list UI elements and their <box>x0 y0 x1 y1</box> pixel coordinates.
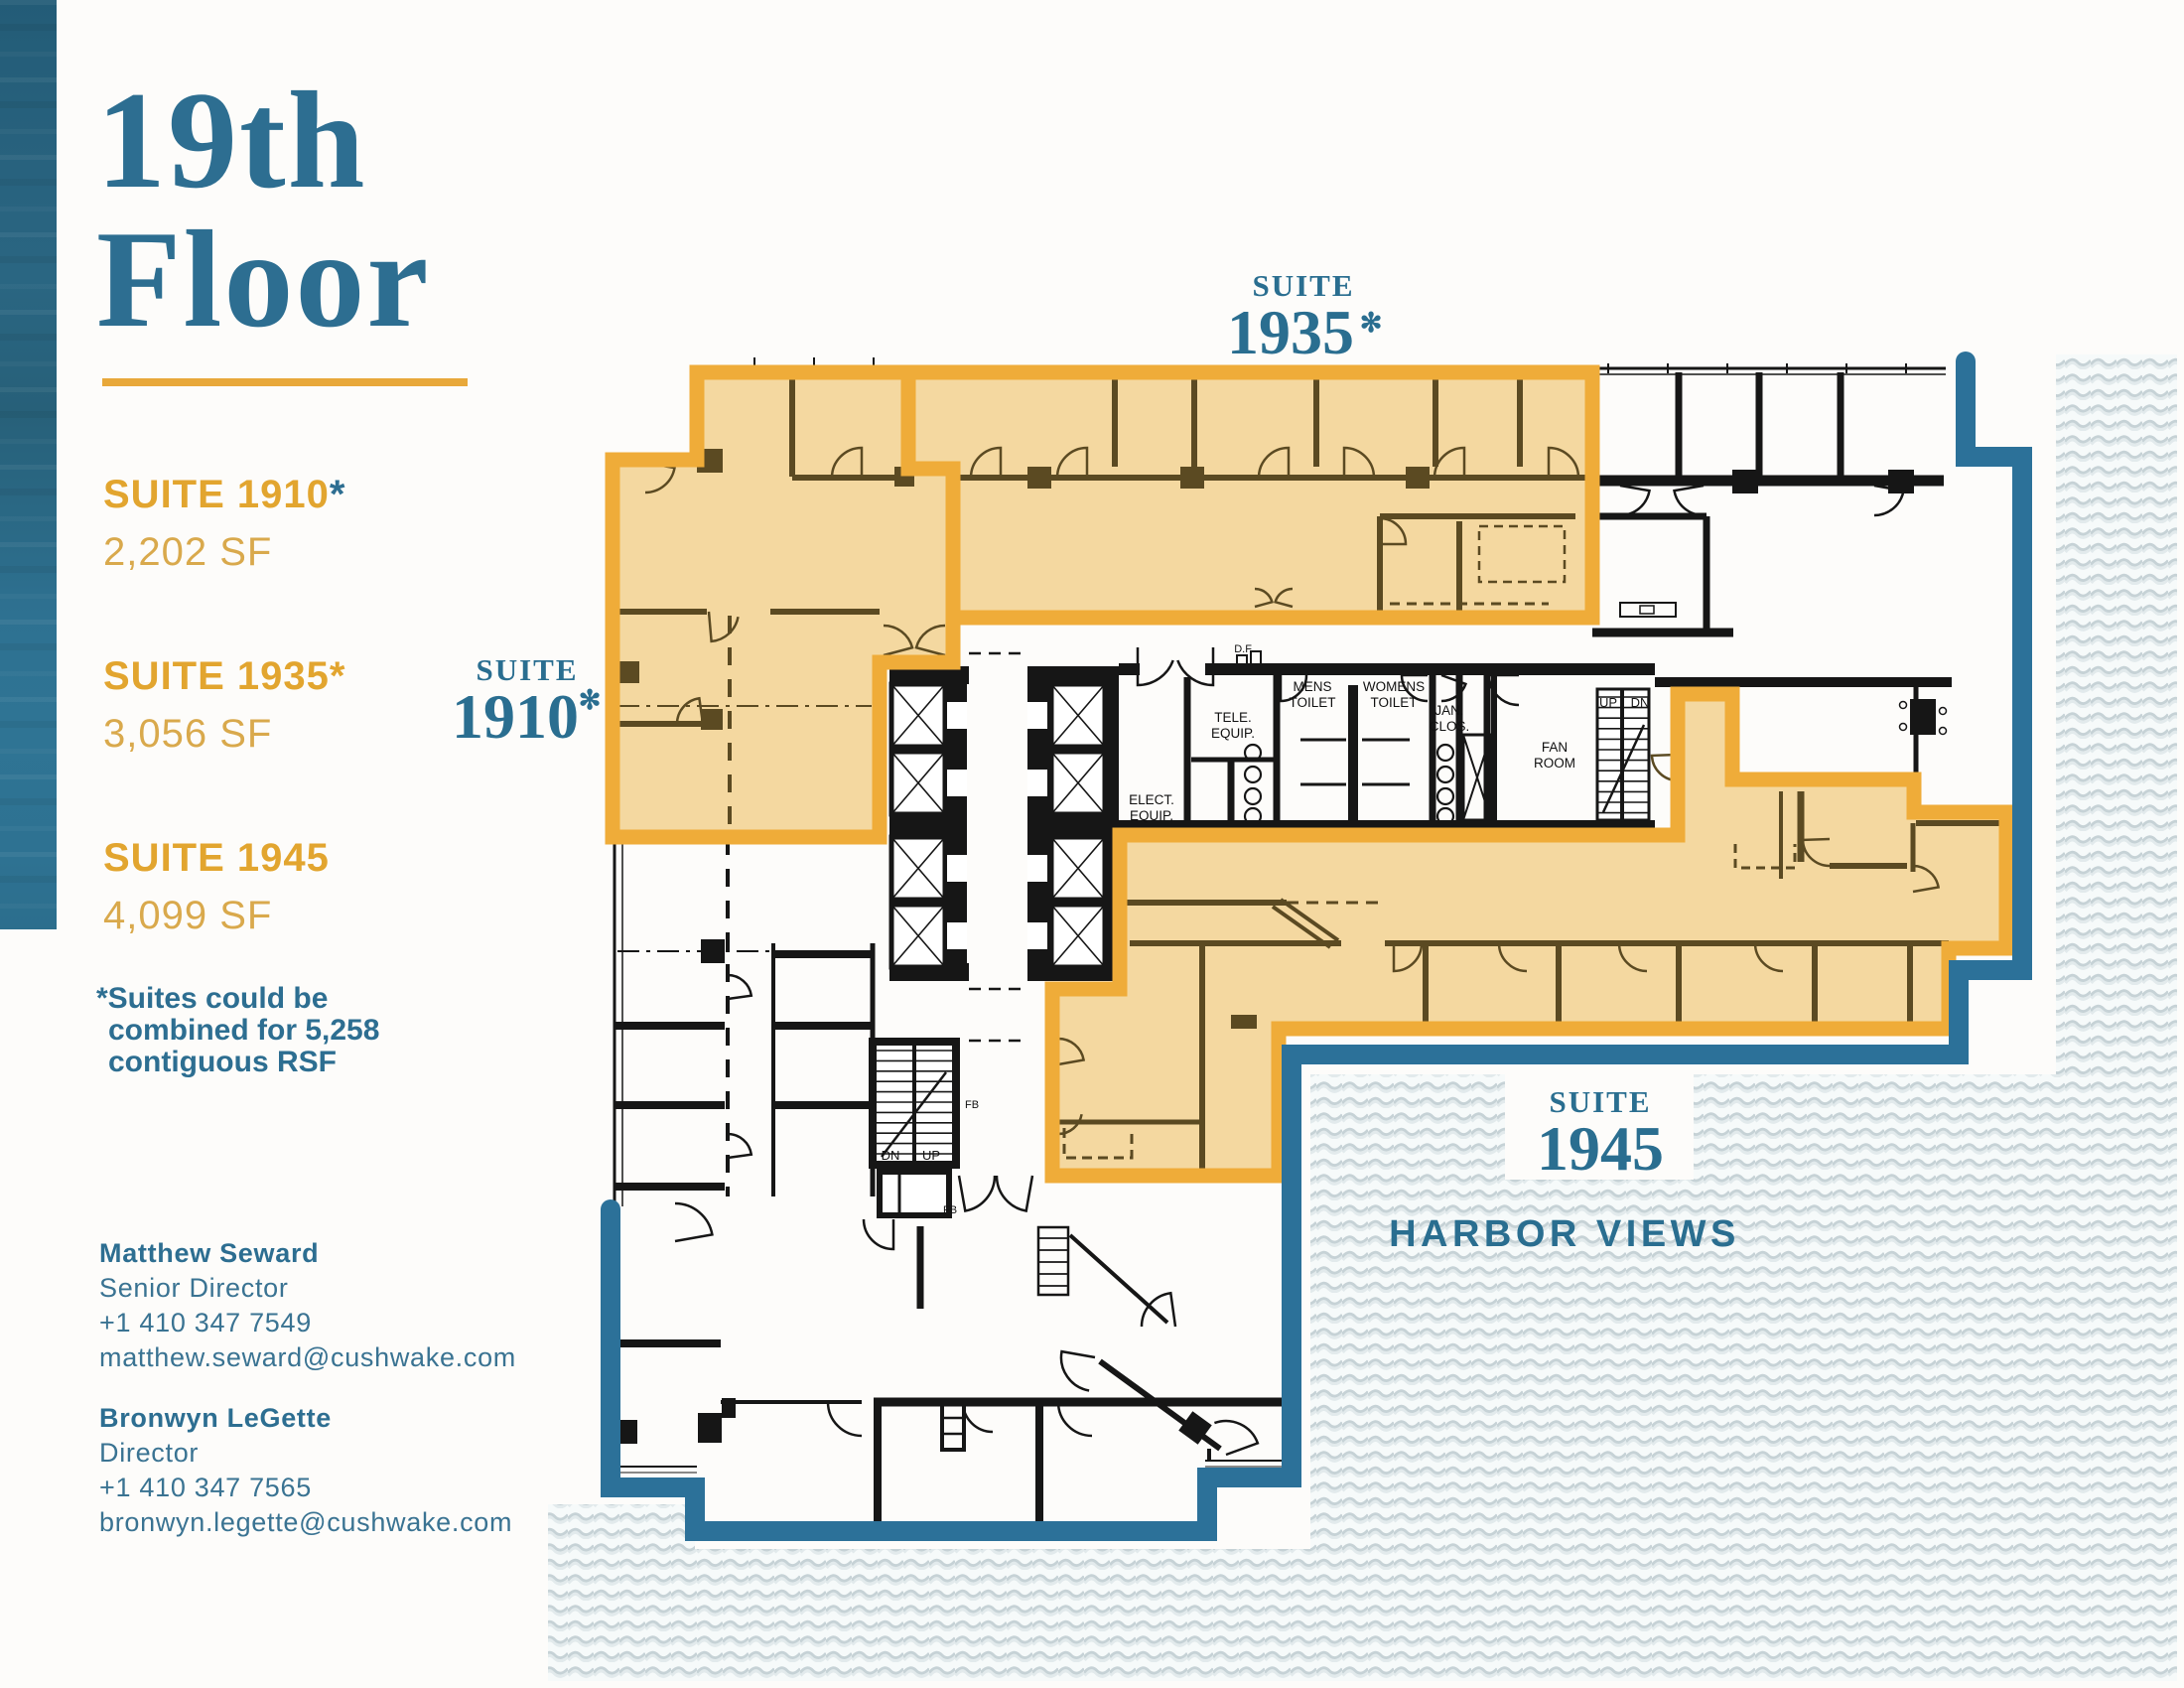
svg-text:HARBOR VIEWS: HARBOR VIEWS <box>1389 1213 1740 1255</box>
svg-text:CLOS.: CLOS. <box>1430 719 1470 734</box>
svg-text:1945: 1945 <box>1537 1113 1664 1184</box>
svg-text:EQUIP.: EQUIP. <box>1211 726 1255 741</box>
svg-text:DN: DN <box>882 1148 900 1163</box>
svg-text:1910: 1910 <box>452 681 579 752</box>
svg-text:MENS: MENS <box>1293 679 1331 694</box>
svg-text:EQUIP.: EQUIP. <box>1130 808 1173 823</box>
svg-text:ROOM: ROOM <box>1534 756 1575 771</box>
svg-text:D.F.: D.F. <box>1234 643 1254 655</box>
svg-text:WOMENS: WOMENS <box>1363 679 1425 694</box>
svg-text:✻: ✻ <box>579 685 602 715</box>
svg-text:✻: ✻ <box>1360 308 1383 338</box>
svg-text:TELE.: TELE. <box>1214 710 1252 725</box>
svg-text:FAN: FAN <box>1542 740 1568 755</box>
svg-text:ELECT.: ELECT. <box>1129 792 1174 807</box>
svg-text:TOILET: TOILET <box>1289 695 1335 710</box>
svg-text:DN: DN <box>1631 695 1650 710</box>
svg-text:UP: UP <box>922 1148 940 1163</box>
svg-text:FB: FB <box>943 1204 957 1216</box>
svg-text:1935: 1935 <box>1227 297 1354 367</box>
svg-text:FB: FB <box>965 1099 979 1111</box>
svg-text:TOILET: TOILET <box>1370 695 1417 710</box>
svg-text:JAN.: JAN. <box>1434 703 1463 718</box>
svg-text:UP: UP <box>1599 695 1617 710</box>
